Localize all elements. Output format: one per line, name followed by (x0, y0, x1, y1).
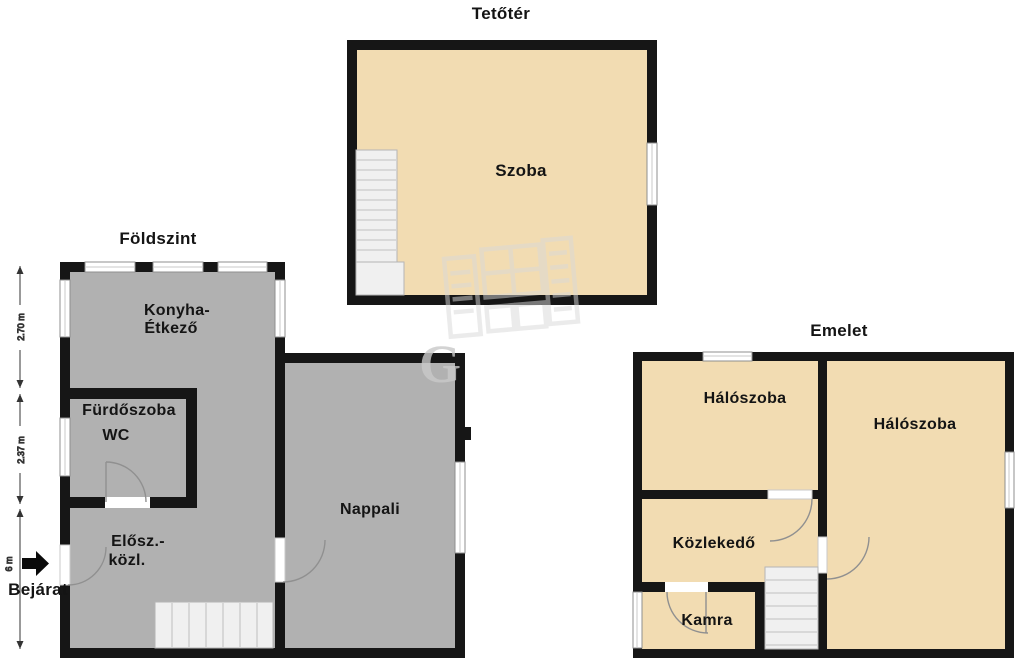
room-label-hallway-line1: Elősz.- (111, 533, 165, 551)
label-layer: Tetőtér Földszint Emelet Szoba Konyha- É… (0, 0, 1024, 660)
room-label-pantry: Kamra (681, 612, 732, 630)
entrance-label: Bejárat (8, 580, 68, 600)
title-upper-floor: Emelet (810, 321, 868, 341)
room-label-wc: WC (102, 427, 129, 445)
room-label-living-room: Nappali (340, 501, 400, 519)
room-label-hallway-line2: közl. (108, 552, 145, 570)
room-label-bedroom-left: Hálószoba (704, 390, 787, 408)
floorplan-page: { "titles": { "attic": "Tetőtér", "groun… (0, 0, 1024, 660)
room-label-szoba: Szoba (495, 161, 547, 181)
room-label-corridor: Közlekedő (673, 535, 756, 553)
title-attic: Tetőtér (472, 4, 530, 24)
room-label-bathroom: Fürdőszoba (82, 402, 176, 420)
room-label-kitchen-line1: Konyha- (144, 302, 210, 320)
room-label-bedroom-right: Hálószoba (874, 416, 957, 434)
room-label-kitchen-line2: Étkező (144, 320, 197, 338)
title-ground-floor: Földszint (119, 229, 196, 249)
